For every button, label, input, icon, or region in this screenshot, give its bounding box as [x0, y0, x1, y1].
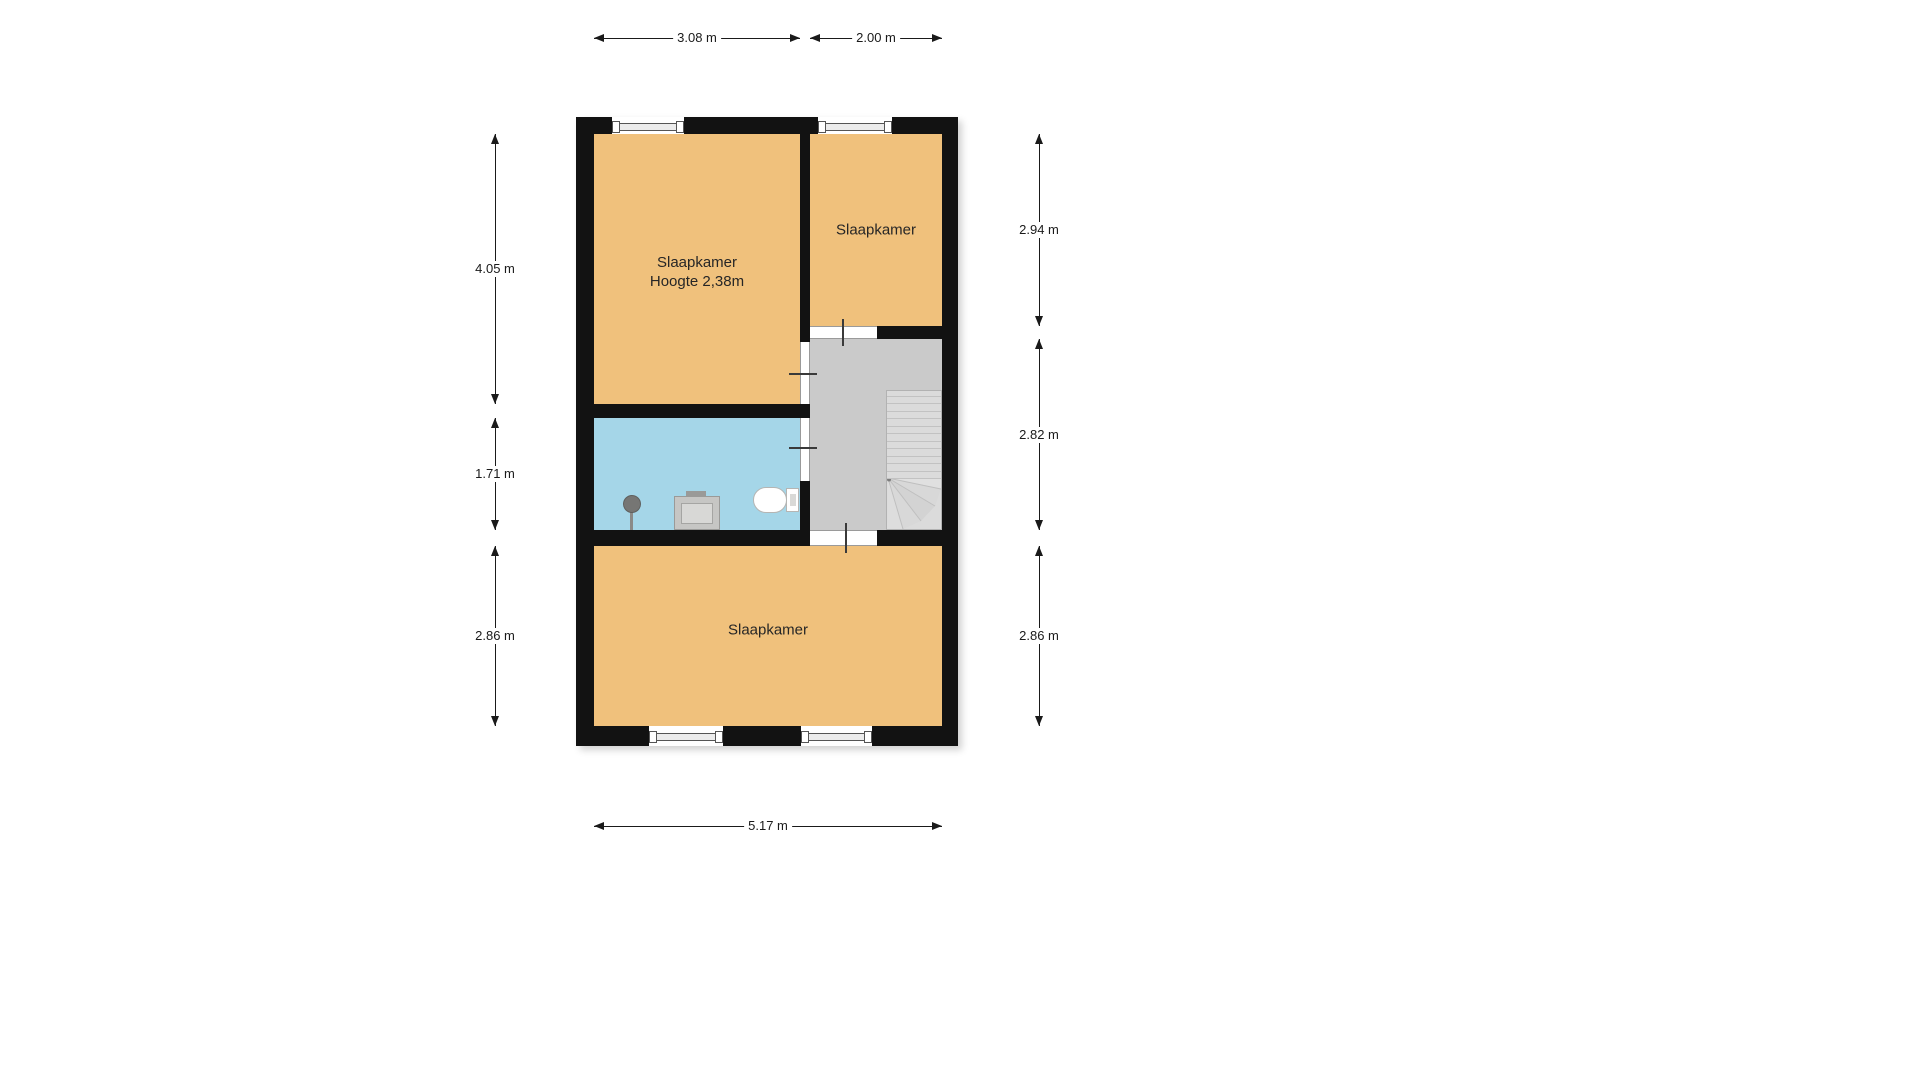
dimension-label: 2.00 m — [852, 30, 900, 46]
room-name: Slaapkamer — [836, 221, 916, 240]
room-name: Slaapkamer — [728, 621, 808, 640]
staircase-winders — [887, 478, 941, 529]
dimension-label: 2.82 m — [1015, 427, 1063, 443]
stair-tread — [887, 463, 941, 464]
window-bottom-right — [801, 726, 872, 746]
wall-bedroom-top-right-bottom — [877, 326, 942, 339]
dimension-label: 4.05 m — [471, 261, 519, 277]
wall-divider-upper — [800, 134, 810, 342]
floorplan-page: Slaapkamer Hoogte 2,38m Slaapkamer Slaap… — [0, 0, 1920, 1080]
wall-outer-bottom — [576, 726, 958, 746]
dimension-label: 2.94 m — [1015, 222, 1063, 238]
stair-tread — [887, 448, 941, 449]
wall-outer-left — [576, 117, 594, 746]
door-tick-bedroom-bottom — [845, 523, 847, 553]
stair-tread — [887, 403, 941, 404]
dimension-label: 2.86 m — [1015, 628, 1063, 644]
pedestal-sink-stem — [630, 512, 633, 530]
dimension-left-middle-height: 1.71 m — [495, 418, 496, 530]
dimension-right-top-height: 2.94 m — [1039, 134, 1040, 326]
vanity-basin — [681, 503, 713, 524]
wall-landing-bottom — [877, 530, 942, 546]
dimension-bottom-width: 5.17 m — [594, 826, 942, 827]
stair-tread — [887, 478, 941, 479]
window-top-left — [612, 117, 684, 134]
window-bottom-left — [649, 726, 723, 746]
stair-tread — [887, 396, 941, 397]
room-label-bedroom-bottom: Slaapkamer — [728, 621, 808, 640]
room-height-note: Hoogte 2,38m — [650, 272, 744, 291]
staircase — [886, 390, 942, 530]
dimension-label: 2.86 m — [471, 628, 519, 644]
stair-tread — [887, 411, 941, 412]
dimension-top-left-width: 3.08 m — [594, 38, 800, 39]
dimension-left-bottom-height: 2.86 m — [495, 546, 496, 726]
pedestal-sink — [623, 495, 641, 513]
door-tick-bathroom — [789, 447, 817, 449]
dimension-right-bottom-height: 2.86 m — [1039, 546, 1040, 726]
room-name: Slaapkamer — [650, 253, 744, 272]
stair-tread — [887, 441, 941, 442]
window-top-right — [818, 117, 892, 134]
door-tick-bedroom-top-left — [789, 373, 817, 375]
dimension-top-right-width: 2.00 m — [810, 38, 942, 39]
room-label-bedroom-top-left: Slaapkamer Hoogte 2,38m — [650, 253, 744, 291]
stair-tread — [887, 471, 941, 472]
dimension-label: 1.71 m — [471, 466, 519, 482]
vanity-faucet — [686, 491, 706, 496]
toilet-tank — [786, 488, 799, 512]
dimension-label: 5.17 m — [744, 818, 792, 834]
dimension-right-middle-height: 2.82 m — [1039, 339, 1040, 530]
stair-tread — [887, 418, 941, 419]
wall-outer-right — [942, 117, 958, 746]
dimension-left-top-height: 4.05 m — [495, 134, 496, 404]
wall-bathroom-bottom — [576, 530, 810, 546]
wall-bedroom-top-left-bottom — [576, 404, 810, 418]
dimension-label: 3.08 m — [673, 30, 721, 46]
door-opening-bedroom-bottom — [810, 530, 877, 546]
stair-tread — [887, 426, 941, 427]
door-tick-bedroom-top-right — [842, 319, 844, 346]
door-opening-bathroom — [800, 418, 810, 481]
vanity-unit — [674, 496, 720, 530]
stair-tread — [887, 456, 941, 457]
room-label-bedroom-top-right: Slaapkamer — [836, 221, 916, 240]
stair-tread — [887, 433, 941, 434]
toilet-bowl — [753, 487, 787, 513]
